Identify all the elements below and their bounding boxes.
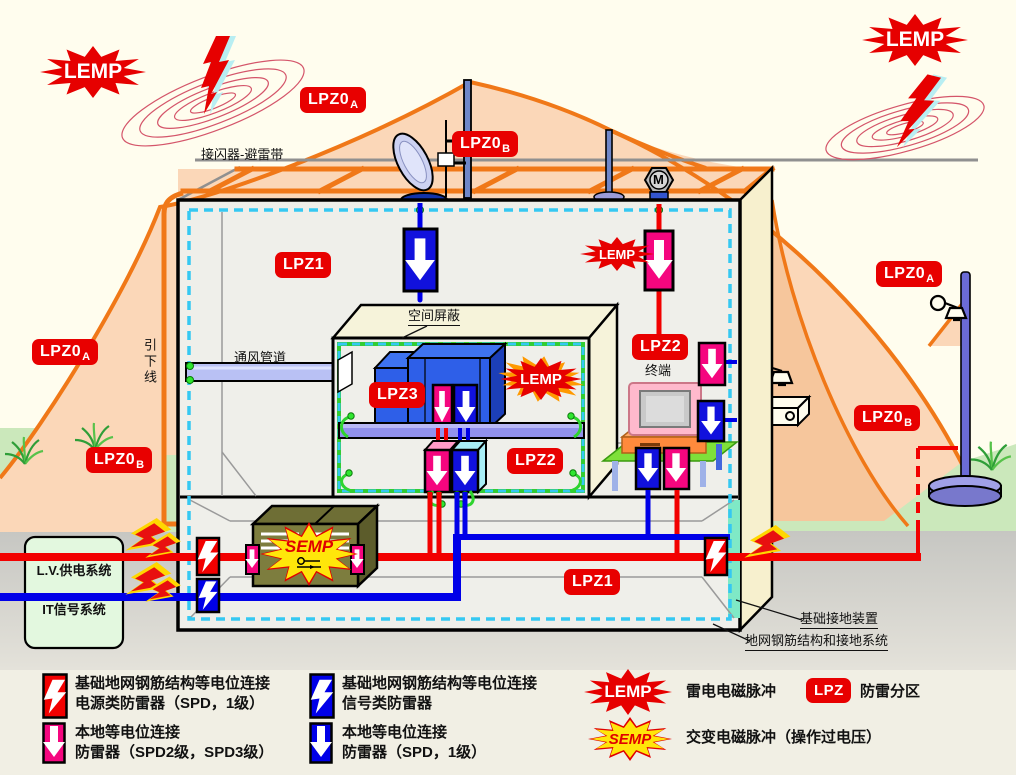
terminal-label: 终端 [645, 360, 671, 379]
lemp-label: LEMP [520, 371, 562, 388]
legend-pink-arrow-icon [42, 722, 66, 769]
motor-label: M [653, 172, 664, 187]
lpz3-badge: LPZ3 [369, 382, 425, 408]
antenna-mast-2 [606, 130, 612, 197]
semp-burst-core: SEMP [591, 720, 669, 758]
it-signal-label: IT信号系统 [25, 599, 123, 618]
legend-blue-bolt-icon [309, 673, 335, 724]
legend-item-3: 本地等电位连接防雷器（SPD2级，SPD3级） [75, 723, 273, 763]
lv-power-label: L.V.供电系统 [25, 560, 123, 579]
spd-terminal-pink-upper [699, 343, 725, 385]
legend-blue-arrow-icon [309, 722, 333, 769]
spd-rack-blue [454, 385, 477, 428]
spd-under-desk-blue [636, 448, 660, 489]
legend-item-1: 基础地网钢筋结构等电位连接电源类防雷器（SPD，1级） [75, 674, 270, 714]
spd-switchgear-left [245, 545, 259, 574]
semp-label: SEMP [285, 537, 333, 557]
lpz0a-badge-roof: LPZ0A [300, 87, 366, 113]
duct-grille-icon [338, 352, 352, 392]
lpz0b-badge-left: LPZ0B [86, 447, 152, 473]
air-terminal-label: 接闪器-避雷带 [201, 144, 283, 163]
overvoltage-glyph-icon [294, 557, 324, 571]
spd-signal-entry-blue [197, 579, 219, 612]
lemp-label: LEMP [604, 682, 651, 702]
lemp-label: LEMP [64, 60, 122, 84]
lpz2-badge-terminal: LPZ2 [632, 334, 688, 360]
raised-floor-highlight [340, 424, 583, 428]
spd-terminal-blue [698, 401, 724, 441]
spd-under-desk-pink [664, 448, 689, 489]
lpz1-badge-upper: LPZ1 [275, 252, 331, 278]
lpz0b-badge-roof: LPZ0B [452, 131, 518, 157]
legend-lemp-label: 雷电电磁脉冲 [686, 682, 776, 702]
spd-power-entry-red [197, 538, 219, 575]
ground-grid-label: 地网钢筋结构和接地系统 [745, 630, 888, 651]
lpz0a-badge-left: LPZ0A [32, 339, 98, 365]
legend-semp-burst: SEMP [588, 717, 672, 761]
semp-label: SEMP [609, 731, 652, 748]
lpz0b-badge-right: LPZ0B [854, 405, 920, 431]
lemp-label: LEMP [886, 28, 944, 52]
spd-rack-pink [433, 385, 452, 428]
legend-lpz-badge: LPZ [806, 678, 851, 703]
legend-semp-label: 交变电磁脉冲（操作过电压） [686, 728, 881, 748]
spd-wall-exit-red [705, 538, 727, 575]
legend-item-2: 基础地网钢筋结构等电位连接信号类防雷器 [342, 674, 537, 714]
legend-red-bolt-icon [42, 673, 68, 724]
space-shield-label: 空间屏蔽 [408, 305, 460, 326]
lpz2-badge-room: LPZ2 [507, 448, 563, 474]
vent-duct-label: 通风管道 [234, 347, 286, 366]
lemp-burst-room: LEMP [498, 356, 584, 402]
lpz1-badge-lower: LPZ1 [564, 569, 620, 595]
lpz0a-badge-right: LPZ0A [876, 261, 942, 287]
legend-item-4: 本地等电位连接防雷器（SPD，1级） [342, 723, 486, 763]
foundation-ground-label: 基础接地装置 [800, 608, 878, 629]
semp-burst-main: SEMP [260, 522, 358, 586]
spd-room-blue [452, 441, 486, 492]
lemp-label: LEMP [599, 247, 635, 262]
semp-burst-core: SEMP [263, 525, 355, 583]
lpz-lightning-protection-diagram: LEMP LEMP LEMP LEMP SEMP LPZ0A LPZ0B LPZ… [0, 0, 1016, 775]
down-conductor-label: 引下线 [140, 338, 159, 386]
legend-lpz-label: 防雷分区 [860, 682, 920, 702]
